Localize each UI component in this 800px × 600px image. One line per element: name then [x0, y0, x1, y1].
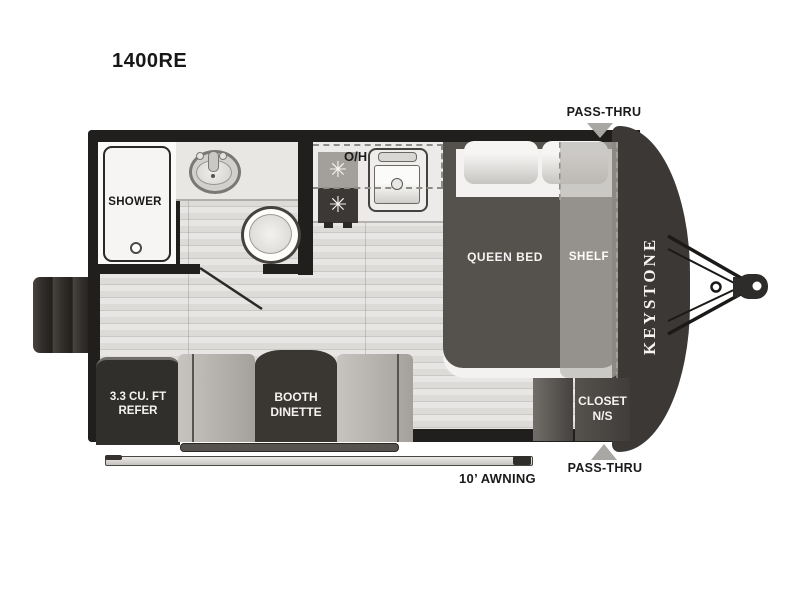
bathroom-wall: [263, 264, 298, 274]
stove-foot: [343, 222, 352, 228]
coupler-bar: [733, 277, 739, 297]
sink-drain-icon: [211, 174, 215, 178]
queen-bed-label: QUEEN BED: [446, 250, 564, 264]
shelf-label: SHELF: [560, 251, 618, 263]
toilet-bowl: [249, 214, 292, 254]
rear-bumper: [33, 277, 95, 353]
dinette-line2: DINETTE: [270, 405, 321, 419]
brand-logo: KEYSTONE: [640, 212, 668, 380]
bathroom-faucet-icon: [208, 151, 219, 172]
closet-line2: N/S: [592, 409, 612, 423]
pillow: [464, 141, 538, 184]
stove-foot: [324, 222, 333, 228]
refer-line2: REFER: [119, 405, 158, 417]
dinette-bench-left: [178, 354, 255, 442]
awning-end-cap: [513, 456, 531, 465]
overhead-cabinet-outline: [313, 144, 443, 146]
nightstand-cabinet: [533, 378, 573, 441]
pass-thru-arrow-icon: [591, 444, 617, 460]
bench-seam: [397, 354, 399, 442]
bathroom-wall: [98, 264, 200, 274]
pass-thru-top-label: PASS-THRU: [544, 105, 664, 119]
floorplan-canvas: 1400RE KEYSTONE SHOWER O/H ✳ ✳ QUEEN BED…: [0, 0, 800, 600]
kitchen-faucet-icon: [378, 152, 417, 162]
awning-arm-bar: [180, 443, 399, 452]
faucet-handle-icon: [219, 152, 227, 160]
overhead-cabinet-outline: [441, 144, 443, 187]
shower-label: SHOWER: [98, 196, 172, 208]
dinette-bench-right: [337, 354, 413, 442]
overhead-cabinet-label: O/H: [344, 149, 367, 164]
closet-line1: CLOSET: [578, 394, 627, 408]
faucet-handle-icon: [196, 152, 204, 160]
page-title: 1400RE: [112, 50, 187, 73]
shower-drain-icon: [130, 242, 142, 254]
refrigerator-label: 3.3 CU. FT REFER: [96, 390, 180, 418]
hitch-ball-hole: [753, 282, 762, 291]
bench-seam: [192, 354, 194, 442]
hitch-coupler: [737, 274, 768, 299]
awning-roller-bar: [105, 456, 533, 466]
dinette-label: BOOTH DINETTE: [255, 390, 337, 420]
pass-thru-bottom-label: PASS-THRU: [545, 461, 665, 475]
dinette-line1: BOOTH: [274, 390, 317, 404]
burner-icon: ✳: [318, 187, 358, 223]
refer-line1: 3.3 CU. FT: [110, 391, 166, 403]
pass-thru-arrow-icon: [587, 123, 613, 138]
overhead-cabinet-outline: [313, 187, 443, 189]
sink-drain-icon: [391, 178, 403, 190]
safety-chain-ring-icon: [712, 283, 721, 292]
awning-end-cap: [105, 455, 122, 460]
bathroom-wall: [298, 142, 313, 275]
closet-label: CLOSET N/S: [575, 394, 630, 424]
